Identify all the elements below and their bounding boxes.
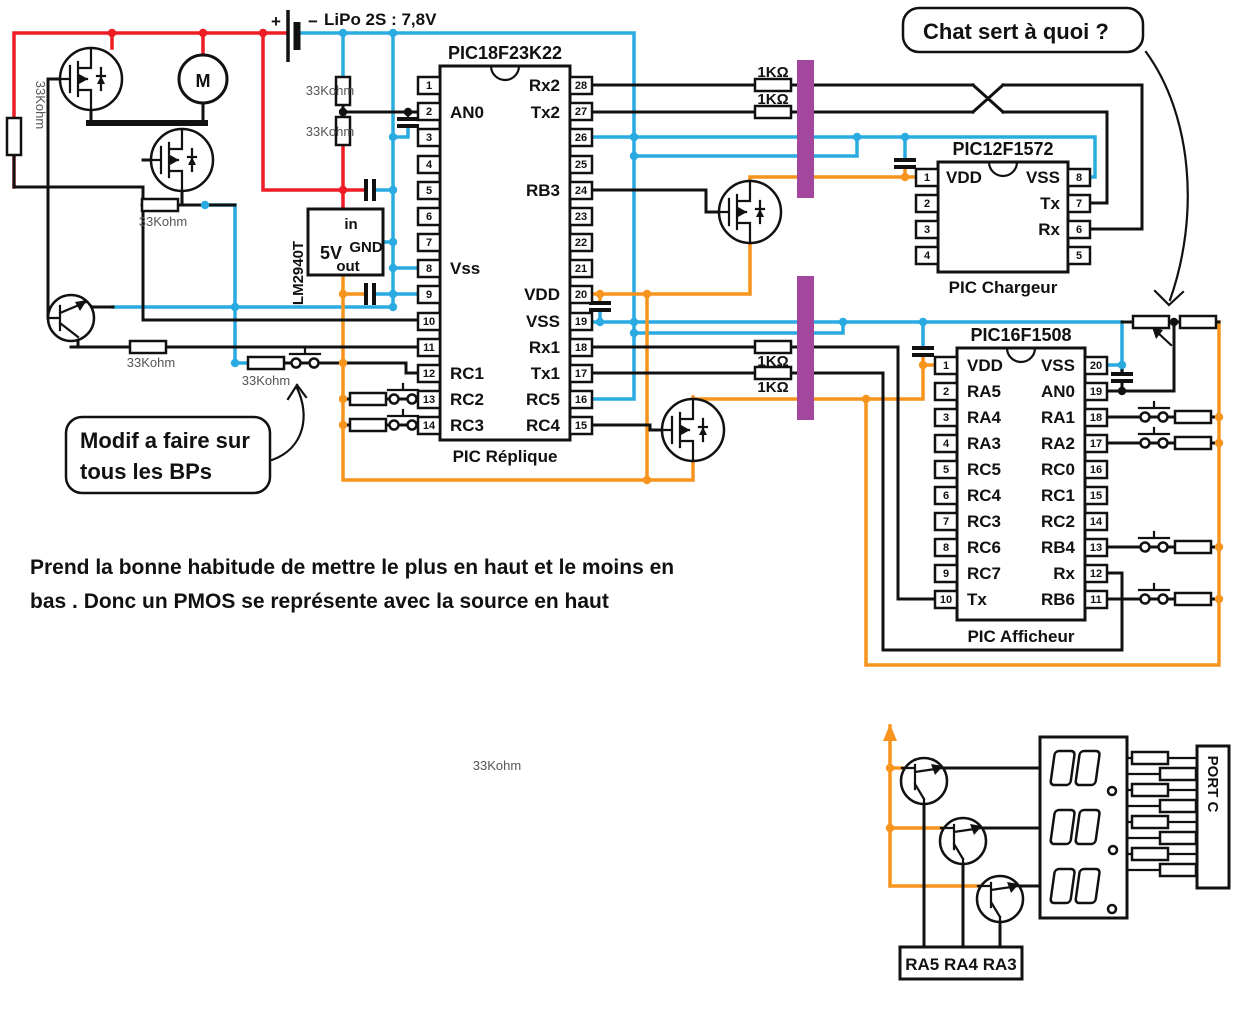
svg-text:17: 17 [575,368,587,380]
chat-arrow [1146,52,1188,305]
schematic-canvas: + − LiPo 2S : 7,8V M in 5V GND out LM294… [0,0,1244,1024]
svg-text:5: 5 [943,464,949,476]
svg-text:AN0: AN0 [450,103,484,122]
battery-plus: + [271,12,281,31]
svg-text:RC3: RC3 [450,416,484,435]
svg-text:4: 4 [426,159,433,171]
svg-text:RA5: RA5 [967,382,1001,401]
pic16-subtitle: PIC Afficheur [967,627,1074,646]
pnp-driver-3-icon [977,876,1023,922]
svg-text:17: 17 [1090,438,1102,450]
pmos-transistor-icon [60,48,122,110]
driver-pins-box: RA5 RA4 RA3 [900,947,1022,979]
svg-text:33Kohm: 33Kohm [139,214,187,229]
svg-text:16: 16 [1090,464,1102,476]
regulator-name: LM2940T [290,241,307,305]
svg-text:1: 1 [943,360,949,372]
mosfet-rc4-icon [662,399,724,461]
svg-text:VSS: VSS [1026,168,1060,187]
svg-text:RC2: RC2 [1041,512,1075,531]
svg-text:3: 3 [924,224,930,236]
svg-text:33Kohm: 33Kohm [306,83,354,98]
note-text: Prend la bonne habitude de mettre le plu… [30,556,674,613]
svg-text:RB4: RB4 [1041,538,1076,557]
svg-text:RC1: RC1 [450,364,484,383]
chat-bubble-text: Chat sert à quoi ? [923,19,1109,44]
svg-text:13: 13 [423,394,435,406]
regulator-gnd-label: GND [349,239,383,256]
battery-label: LiPo 2S : 7,8V [324,10,437,29]
svg-text:RA2: RA2 [1041,434,1075,453]
svg-text:Tx: Tx [967,590,987,609]
svg-text:21: 21 [575,263,587,275]
svg-text:23: 23 [575,211,587,223]
svg-text:9: 9 [943,568,949,580]
isolation-barrier-mid [797,276,814,420]
svg-text:RB6: RB6 [1041,590,1075,609]
svg-text:19: 19 [575,316,587,328]
svg-text:14: 14 [423,420,436,432]
svg-text:10: 10 [423,316,435,328]
svg-text:RC1: RC1 [1041,486,1075,505]
svg-text:5: 5 [426,185,432,197]
svg-text:RC7: RC7 [967,564,1001,583]
svg-text:RC2: RC2 [450,390,484,409]
svg-text:8: 8 [426,263,432,275]
svg-text:7: 7 [426,237,432,249]
svg-text:RB3: RB3 [526,181,560,200]
svg-text:20: 20 [1090,360,1102,372]
pnp-driver-1-icon [901,758,947,804]
motor-label: M [196,71,211,91]
svg-text:33Kohm: 33Kohm [306,124,354,139]
svg-text:RC6: RC6 [967,538,1001,557]
svg-text:33Kohm: 33Kohm [127,355,175,370]
pic18-subtitle: PIC Réplique [453,447,558,466]
svg-text:3: 3 [943,412,949,424]
svg-text:RC4: RC4 [967,486,1002,505]
npn-transistor-icon [48,295,94,341]
svg-text:1: 1 [924,172,930,184]
svg-text:15: 15 [575,420,587,432]
svg-text:15: 15 [1090,490,1102,502]
modif-arrow [272,385,306,460]
svg-text:24: 24 [575,185,588,197]
svg-text:6: 6 [426,211,432,223]
svg-text:11: 11 [1090,594,1102,606]
schematic-page: + − LiPo 2S : 7,8V M in 5V GND out LM294… [0,0,1244,1024]
svg-text:Vss: Vss [450,259,480,278]
svg-text:Tx: Tx [1040,194,1060,213]
svg-text:Tx2: Tx2 [531,103,560,122]
svg-text:13: 13 [1090,542,1102,554]
svg-text:8: 8 [943,542,949,554]
note-line-2: bas . Donc un PMOS se représente avec la… [30,590,609,613]
svg-text:RC3: RC3 [967,512,1001,531]
note-line-1: Prend la bonne habitude de mettre le plu… [30,556,674,579]
svg-text:9: 9 [426,289,432,301]
svg-text:RA1: RA1 [1041,408,1075,427]
seven-segment-display [1040,737,1127,918]
svg-text:RC4: RC4 [526,416,561,435]
driver-pins-label: RA5 RA4 RA3 [905,955,1016,974]
svg-text:18: 18 [1090,412,1102,424]
svg-text:33Kohm: 33Kohm [242,373,290,388]
battery-minus: − [308,12,318,31]
modif-bubble: Modif a faire sur tous les BPs [66,385,306,493]
svg-text:2: 2 [943,386,949,398]
svg-text:7: 7 [943,516,949,528]
svg-text:RC5: RC5 [526,390,560,409]
svg-text:5: 5 [1076,250,1082,262]
svg-text:4: 4 [924,250,931,262]
svg-text:VDD: VDD [946,168,982,187]
svg-text:12: 12 [1090,568,1102,580]
svg-text:18: 18 [575,342,587,354]
svg-text:Rx: Rx [1038,220,1060,239]
svg-text:VSS: VSS [1041,356,1075,375]
svg-text:22: 22 [575,237,587,249]
svg-text:33Kohm: 33Kohm [33,81,48,129]
svg-text:VSS: VSS [526,312,560,331]
svg-text:VDD: VDD [967,356,1003,375]
svg-text:RC0: RC0 [1041,460,1075,479]
pic12-title: PIC12F1572 [952,139,1053,159]
svg-text:26: 26 [575,132,587,144]
svg-text:RC5: RC5 [967,460,1001,479]
svg-text:RA3: RA3 [967,434,1001,453]
pic12-chip: PIC12F1572 PIC Chargeur 1 2 3 4 8 7 6 5 … [916,139,1090,297]
svg-text:RA4: RA4 [967,408,1002,427]
voltage-regulator: in 5V GND out LM2940T [290,209,383,305]
svg-text:7: 7 [1076,198,1082,210]
svg-text:6: 6 [943,490,949,502]
mosfet-rb3-icon [719,181,781,243]
regulator-in-label: in [344,216,357,233]
pnp-driver-2-icon [940,818,986,864]
regulator-out-label: out [336,258,359,275]
svg-text:33Kohm: 33Kohm [473,758,521,773]
svg-text:19: 19 [1090,386,1102,398]
modif-bubble-text-1: Modif a faire sur [80,428,250,453]
modif-bubble-text-2: tous les BPs [80,459,212,484]
svg-text:12: 12 [423,368,435,380]
svg-text:16: 16 [575,394,587,406]
svg-text:10: 10 [940,594,952,606]
svg-text:1: 1 [426,80,432,92]
segment-resistor-fan [1127,752,1197,876]
svg-text:3: 3 [426,132,432,144]
port-c-label: PORT C [1204,756,1221,813]
svg-text:27: 27 [575,106,587,118]
battery: + − LiPo 2S : 7,8V [271,10,437,62]
port-c-connector: PORT C [1197,746,1229,888]
svg-text:6: 6 [1076,224,1082,236]
pic16-chip: PIC16F1508 PIC Afficheur 1 2 3 4 5 6 7 8… [935,325,1107,646]
svg-text:1KΩ: 1KΩ [757,379,788,396]
svg-text:4: 4 [943,438,950,450]
svg-text:AN0: AN0 [1041,382,1075,401]
svg-text:1KΩ: 1KΩ [757,91,788,108]
pic16-title: PIC16F1508 [970,325,1071,345]
svg-text:1KΩ: 1KΩ [757,353,788,370]
svg-text:Rx2: Rx2 [529,76,560,95]
svg-text:Tx1: Tx1 [531,364,560,383]
svg-text:VDD: VDD [524,285,560,304]
svg-text:8: 8 [1076,172,1082,184]
svg-text:11: 11 [423,342,435,354]
pic18-title: PIC18F23K22 [448,43,562,63]
isolation-barrier-top [797,60,814,198]
svg-text:2: 2 [426,106,432,118]
nmos-transistor-icon [151,129,213,191]
motor: M [179,55,227,103]
svg-text:1KΩ: 1KΩ [757,64,788,81]
svg-text:14: 14 [1090,516,1103,528]
svg-text:28: 28 [575,80,587,92]
svg-text:20: 20 [575,289,587,301]
svg-text:25: 25 [575,159,587,171]
pic18-chip: PIC18F23K22 PIC Réplique 1 2 3 4 5 6 7 8… [418,43,592,466]
svg-text:Rx1: Rx1 [529,338,560,357]
svg-text:Rx: Rx [1053,564,1075,583]
pic12-subtitle: PIC Chargeur [949,278,1058,297]
svg-text:2: 2 [924,198,930,210]
